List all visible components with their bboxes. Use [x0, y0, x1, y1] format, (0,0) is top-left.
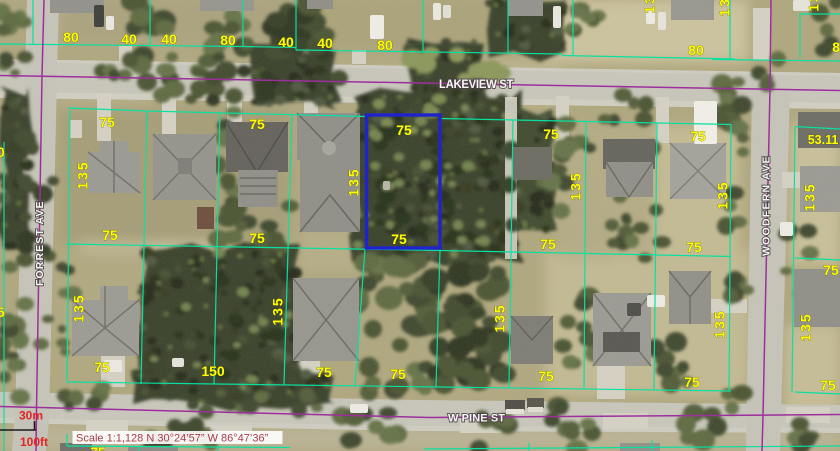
svg-text:135: 135	[712, 309, 728, 338]
svg-text:53.11: 53.11	[808, 133, 839, 147]
svg-text:135: 135	[71, 293, 87, 322]
svg-text:Scale 1:1,128 N 30°24’57” W: Scale 1:1,128 N 30°24’57” W 86°47’36”	[76, 433, 269, 445]
svg-text:135: 135	[568, 171, 584, 200]
svg-text:135: 135	[717, 0, 733, 17]
svg-text:75: 75	[94, 359, 110, 375]
svg-text:75: 75	[90, 444, 106, 451]
svg-text:40: 40	[317, 35, 333, 51]
svg-text:75: 75	[249, 116, 265, 132]
svg-text:75: 75	[684, 374, 700, 390]
svg-text:LAKEVIEW ST: LAKEVIEW ST	[439, 79, 514, 91]
svg-text:90: 90	[0, 144, 5, 160]
svg-text:75: 75	[99, 114, 115, 130]
svg-text:FORREST AVE: FORREST AVE	[34, 201, 46, 286]
svg-text:80: 80	[63, 29, 79, 45]
svg-text:80: 80	[832, 39, 840, 55]
svg-text:WOODFERN AVE: WOODFERN AVE	[761, 156, 773, 256]
svg-text:40: 40	[278, 34, 294, 50]
svg-text:75: 75	[316, 364, 332, 380]
svg-text:135: 135	[346, 167, 362, 196]
svg-text:80: 80	[220, 32, 236, 48]
svg-text:150: 150	[201, 363, 225, 379]
svg-text:75: 75	[391, 231, 407, 247]
svg-text:40: 40	[121, 31, 137, 47]
svg-text:80: 80	[377, 37, 393, 53]
svg-text:75: 75	[823, 262, 839, 278]
svg-text:135: 135	[642, 0, 658, 14]
svg-text:40: 40	[161, 31, 177, 47]
svg-text:75: 75	[690, 128, 706, 144]
svg-text:75: 75	[396, 122, 412, 138]
svg-text:75: 75	[390, 366, 406, 382]
svg-text:135: 135	[802, 182, 818, 211]
svg-text:135: 135	[806, 0, 822, 12]
svg-text:80: 80	[688, 42, 704, 58]
svg-text:75: 75	[538, 368, 554, 384]
svg-text:W PINE ST: W PINE ST	[448, 413, 505, 425]
svg-text:75: 75	[543, 126, 559, 142]
svg-text:30m: 30m	[19, 409, 43, 423]
svg-text:135: 135	[270, 296, 286, 325]
svg-text:75: 75	[686, 239, 702, 255]
svg-text:100ft: 100ft	[20, 435, 48, 449]
svg-text:135: 135	[715, 180, 731, 209]
svg-text:75: 75	[540, 236, 556, 252]
svg-text:135: 135	[75, 160, 91, 189]
svg-text:135: 135	[492, 303, 508, 332]
svg-text:75: 75	[249, 230, 265, 246]
svg-text:135: 135	[798, 312, 814, 341]
svg-text:75: 75	[820, 377, 836, 393]
svg-text:35: 35	[0, 304, 5, 320]
svg-text:75: 75	[102, 227, 118, 243]
